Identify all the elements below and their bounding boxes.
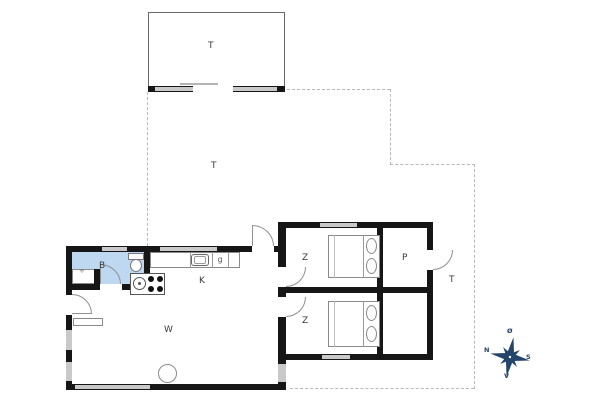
window-east-living (278, 364, 286, 382)
window-west-1 (66, 330, 72, 350)
kitchen-entry-opening (252, 246, 274, 252)
bed-bottom-head-line (363, 301, 364, 347)
door-arc-living-entry (72, 294, 92, 314)
storage-label: P (402, 254, 407, 263)
bedroom-bottom-label: Z (302, 317, 308, 326)
bed-bottom-pillow-1 (366, 305, 377, 321)
main-terrace-label: T (211, 162, 217, 171)
bedroom-top-label: Z (302, 254, 308, 263)
bed-bottom-foot-line (334, 301, 335, 347)
compass-letter-east: Ø (507, 328, 513, 335)
door-leaf-living-entry (72, 313, 92, 314)
window-wing-north (320, 223, 357, 227)
wall-wing-east-2 (427, 270, 433, 360)
wall-wing-divider-h (286, 287, 427, 293)
kitchen-label: K (199, 277, 205, 286)
compass-rose: Ø N S V (484, 326, 536, 382)
bed-top-pillow-2 (366, 258, 377, 274)
toilet-bowl (130, 259, 142, 272)
window-wing-south (322, 355, 350, 359)
terrace-outline-step-h (390, 164, 475, 165)
sideboard (73, 318, 103, 326)
terrace-outline-step-v (390, 89, 391, 165)
burner-2 (157, 276, 163, 282)
door-arc-bedroom-bottom (286, 297, 306, 317)
terrace-outline-left (147, 92, 148, 246)
oven-center-dot (138, 282, 141, 285)
annex-terrace-label: T (208, 42, 214, 51)
door-arc-kitchen-entry (252, 225, 274, 246)
wall-east-column-2 (278, 287, 286, 297)
burner-1 (148, 276, 154, 282)
compass-letter-south: S (526, 354, 531, 361)
wall-east-column-4 (278, 382, 286, 390)
bed-top-head-line (363, 235, 364, 278)
annex-window-left (155, 87, 193, 91)
counter-divider-3 (228, 252, 229, 268)
compass-letter-west: V (504, 373, 509, 380)
door-arc-storage (433, 250, 453, 270)
wall-wing-east-1 (427, 222, 433, 250)
shower-drain-mark: + (79, 268, 85, 275)
wall-wing-south (278, 354, 433, 360)
side-terrace-label: T (449, 276, 455, 285)
burner-3 (148, 286, 154, 292)
annex-sliding-door (180, 83, 218, 85)
wall-west-3 (66, 350, 72, 362)
terrace-outline-bottom (290, 388, 474, 389)
wall-east-column-1 (278, 222, 286, 267)
annex-door-opening (193, 86, 233, 92)
door-arc-bedroom-top (286, 267, 306, 287)
door-leaf-kitchen-entry (252, 225, 253, 246)
bed-top-pillow-1 (366, 238, 377, 254)
compass-letter-north: N (484, 347, 489, 354)
bed-top-foot-line (334, 235, 335, 278)
window-south-living (75, 385, 150, 389)
wall-bath-south-a (66, 284, 100, 290)
floor-plan: T T T + (0, 0, 600, 400)
window-top-kitchen (160, 247, 217, 251)
window-west-2 (66, 362, 72, 381)
kitchen-cell-label: g (212, 256, 228, 264)
bathroom-label: B (99, 262, 105, 271)
kitchen-sink-basin (194, 256, 206, 264)
annex-window-right (233, 87, 277, 91)
burner-4 (157, 286, 163, 292)
bed-bottom-pillow-2 (366, 326, 377, 342)
wall-west-2 (66, 315, 72, 330)
terrace-outline-right (474, 164, 475, 389)
window-top-bath (102, 247, 127, 251)
round-table (158, 364, 177, 383)
terrace-outline-top (287, 89, 390, 90)
living-room-label: W (164, 326, 173, 335)
compass-star-icon (490, 337, 530, 377)
annex-building-outline (148, 12, 285, 88)
